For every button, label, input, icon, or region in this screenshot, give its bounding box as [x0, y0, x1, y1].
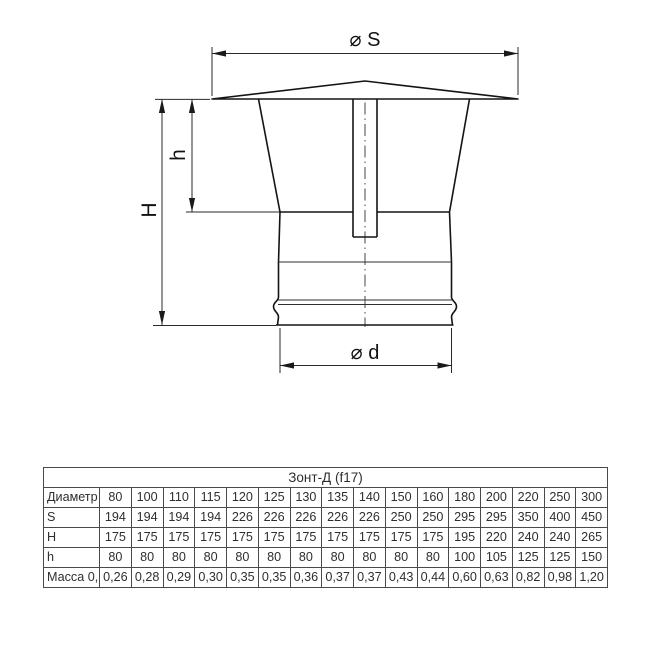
cell-value: 226	[354, 508, 386, 528]
cell-value: 150	[576, 548, 608, 568]
cell-value: 220	[512, 488, 544, 508]
cell-value: 350	[512, 508, 544, 528]
cell-value: 80	[417, 548, 449, 568]
cell-value: 0,30	[195, 568, 227, 588]
cell-value: 175	[290, 528, 322, 548]
cell-value: 175	[227, 528, 259, 548]
table-row: Масса 0,50,260,280,290,300,350,350,360,3…	[44, 568, 608, 588]
cell-value: 115	[195, 488, 227, 508]
cell-value: 295	[481, 508, 513, 528]
cell-value: 226	[322, 508, 354, 528]
cell-value: 100	[131, 488, 163, 508]
cell-value: 80	[195, 548, 227, 568]
cell-value: 0,43	[385, 568, 417, 588]
cell-value: 450	[576, 508, 608, 528]
cell-value: 0,37	[322, 568, 354, 588]
table-row: S194194194194226226226226226250250295295…	[44, 508, 608, 528]
cell-value: 175	[417, 528, 449, 548]
cell-value: 180	[449, 488, 481, 508]
cell-value: 175	[258, 528, 290, 548]
technical-drawing: ⌀ S H h ⌀ d	[0, 0, 650, 460]
cell-value: 125	[512, 548, 544, 568]
dim-label-diameter-d: ⌀ d	[351, 342, 380, 364]
cell-value: 265	[576, 528, 608, 548]
cell-value: 80	[100, 548, 132, 568]
cell-value: 175	[195, 528, 227, 548]
cell-value: 0,82	[512, 568, 544, 588]
cell-value: 80	[290, 548, 322, 568]
cell-value: 200	[481, 488, 513, 508]
cell-value: 130	[290, 488, 322, 508]
cell-value: 0,26	[100, 568, 132, 588]
cell-value: 150	[385, 488, 417, 508]
cell-value: 0,29	[163, 568, 195, 588]
cell-value: 195	[449, 528, 481, 548]
cell-value: 160	[417, 488, 449, 508]
table-row: H175175175175175175175175175175175195220…	[44, 528, 608, 548]
dim-label-height-H: H	[138, 202, 161, 217]
cell-value: 400	[544, 508, 576, 528]
cell-value: 0,63	[481, 568, 513, 588]
cell-value: 80	[100, 488, 132, 508]
cell-value: 250	[385, 508, 417, 528]
cell-value: 0,98	[544, 568, 576, 588]
cell-value: 80	[258, 548, 290, 568]
cell-value: 175	[354, 528, 386, 548]
cell-value: 194	[195, 508, 227, 528]
cell-value: 250	[417, 508, 449, 528]
cell-value: 240	[512, 528, 544, 548]
row-label: Масса 0,5	[44, 568, 100, 588]
cell-value: 100	[449, 548, 481, 568]
cell-value: 175	[385, 528, 417, 548]
cell-value: 80	[322, 548, 354, 568]
cell-value: 194	[131, 508, 163, 528]
cell-value: 175	[100, 528, 132, 548]
cell-value: 0,36	[290, 568, 322, 588]
table-row: Диаметр801001101151201251301351401501601…	[44, 488, 608, 508]
cell-value: 105	[481, 548, 513, 568]
row-label: S	[44, 508, 100, 528]
spec-table-container: Зонт-Д (f17) Диаметр80100110115120125130…	[43, 467, 608, 588]
cell-value: 226	[227, 508, 259, 528]
cell-value: 226	[258, 508, 290, 528]
cell-value: 125	[258, 488, 290, 508]
cell-value: 1,20	[576, 568, 608, 588]
cell-value: 300	[576, 488, 608, 508]
cell-value: 120	[227, 488, 259, 508]
cell-value: 295	[449, 508, 481, 528]
cell-value: 110	[163, 488, 195, 508]
cell-value: 0,35	[227, 568, 259, 588]
part-outline	[212, 81, 518, 325]
cell-value: 175	[322, 528, 354, 548]
table-row: h8080808080808080808080100105125125150	[44, 548, 608, 568]
cell-value: 80	[227, 548, 259, 568]
cell-value: 135	[322, 488, 354, 508]
cell-value: 175	[163, 528, 195, 548]
cell-value: 80	[354, 548, 386, 568]
cell-value: 80	[131, 548, 163, 568]
cell-value: 80	[385, 548, 417, 568]
cell-value: 175	[131, 528, 163, 548]
table-body: Диаметр801001101151201251301351401501601…	[44, 488, 608, 588]
table-title: Зонт-Д (f17)	[44, 468, 608, 488]
cell-value: 194	[100, 508, 132, 528]
dim-label-diameter-s: ⌀ S	[350, 29, 381, 51]
row-label: Диаметр	[44, 488, 100, 508]
row-label: h	[44, 548, 100, 568]
cell-value: 0,28	[131, 568, 163, 588]
table-title-row: Зонт-Д (f17)	[44, 468, 608, 488]
spec-table: Зонт-Д (f17) Диаметр80100110115120125130…	[43, 467, 608, 588]
cell-value: 125	[544, 548, 576, 568]
cell-value: 0,60	[449, 568, 481, 588]
row-label: H	[44, 528, 100, 548]
cell-value: 226	[290, 508, 322, 528]
cell-value: 80	[163, 548, 195, 568]
cell-value: 0,44	[417, 568, 449, 588]
cell-value: 0,37	[354, 568, 386, 588]
cell-value: 220	[481, 528, 513, 548]
chimney-cap-diagram: ⌀ S H h ⌀ d	[0, 0, 650, 460]
dim-label-height-h: h	[167, 149, 190, 161]
cell-value: 250	[544, 488, 576, 508]
page: { "drawing": { "dim_top_label": "⌀ S", "…	[0, 0, 650, 650]
cell-value: 140	[354, 488, 386, 508]
cell-value: 240	[544, 528, 576, 548]
cell-value: 194	[163, 508, 195, 528]
cell-value: 0,35	[258, 568, 290, 588]
